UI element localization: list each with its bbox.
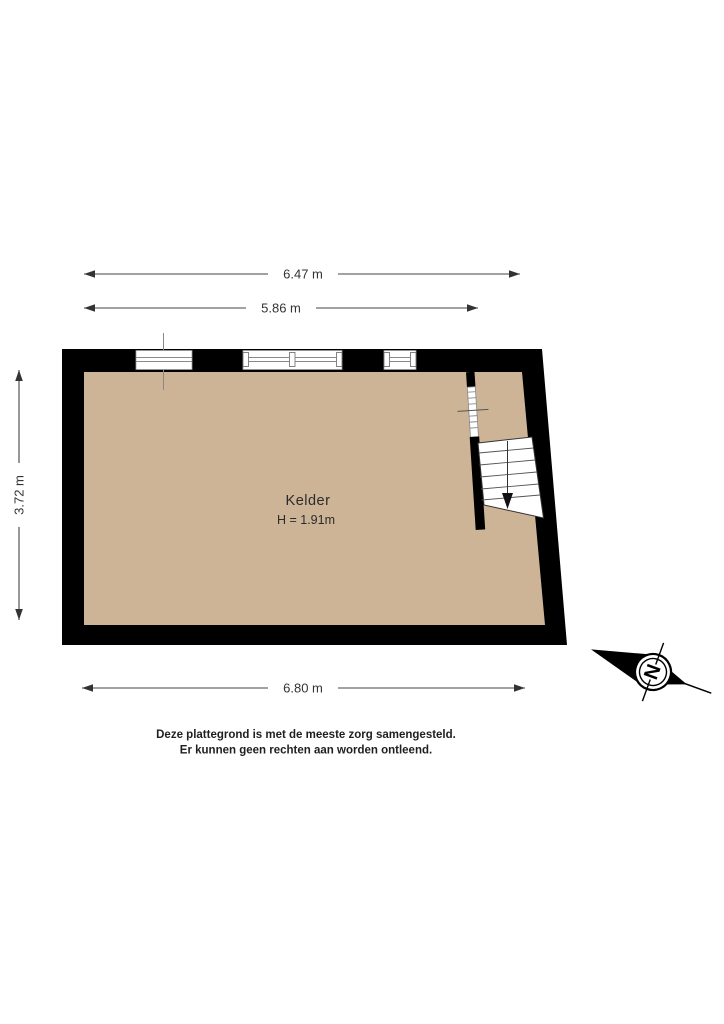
window-mullion (411, 353, 417, 367)
room-height-label: H = 1.91m (277, 513, 335, 527)
window-mullion (290, 353, 296, 367)
window-1 (136, 351, 192, 370)
disclaimer: Deze plattegrond is met de meeste zorg s… (156, 729, 456, 757)
arrow-down-icon (15, 609, 23, 620)
floorplan-body (62, 333, 567, 645)
window-mullion (384, 353, 390, 367)
window-2 (243, 351, 342, 370)
arrow-left-icon (84, 270, 95, 278)
interior-window-line (470, 422, 478, 423)
room-name: Kelder (286, 493, 331, 509)
window-mullion (243, 353, 249, 367)
interior-window-line (468, 392, 476, 393)
disclaimer-line-2: Er kunnen geen rechten aan worden ontlee… (180, 745, 432, 757)
staircase (478, 437, 544, 518)
arrow-left-icon (82, 684, 93, 692)
interior-window-line (469, 416, 477, 417)
interior-window-line (470, 428, 478, 429)
dimension-top-outer: 6.47 m (84, 267, 520, 282)
compass-icon: N (580, 620, 721, 722)
floorplan-page: 6.47 m 5.86 m 3.72 m 6.80 m (0, 0, 724, 1024)
floorplan-canvas: 6.47 m 5.86 m 3.72 m 6.80 m (0, 0, 724, 1024)
dimension-bottom: 6.80 m (82, 681, 525, 696)
dimension-label: 6.80 m (283, 681, 323, 696)
disclaimer-line-1: Deze plattegrond is met de meeste zorg s… (156, 729, 456, 741)
interior-window-line (468, 398, 476, 399)
window-mullion (337, 353, 343, 367)
arrow-right-icon (514, 684, 525, 692)
window-frame (136, 351, 192, 370)
dimension-label: 6.47 m (283, 267, 323, 282)
dimension-label: 3.72 m (12, 475, 27, 515)
interior-wall-upper (466, 372, 475, 388)
dimension-top-inner: 5.86 m (84, 301, 478, 316)
arrow-up-icon (15, 370, 23, 381)
arrow-left-icon (84, 304, 95, 312)
dimension-label: 5.86 m (261, 301, 301, 316)
dimension-left: 3.72 m (12, 370, 27, 620)
window-3 (384, 351, 416, 370)
interior-window-line (468, 404, 476, 405)
arrow-right-icon (467, 304, 478, 312)
stair-outline (478, 437, 544, 518)
arrow-right-icon (509, 270, 520, 278)
